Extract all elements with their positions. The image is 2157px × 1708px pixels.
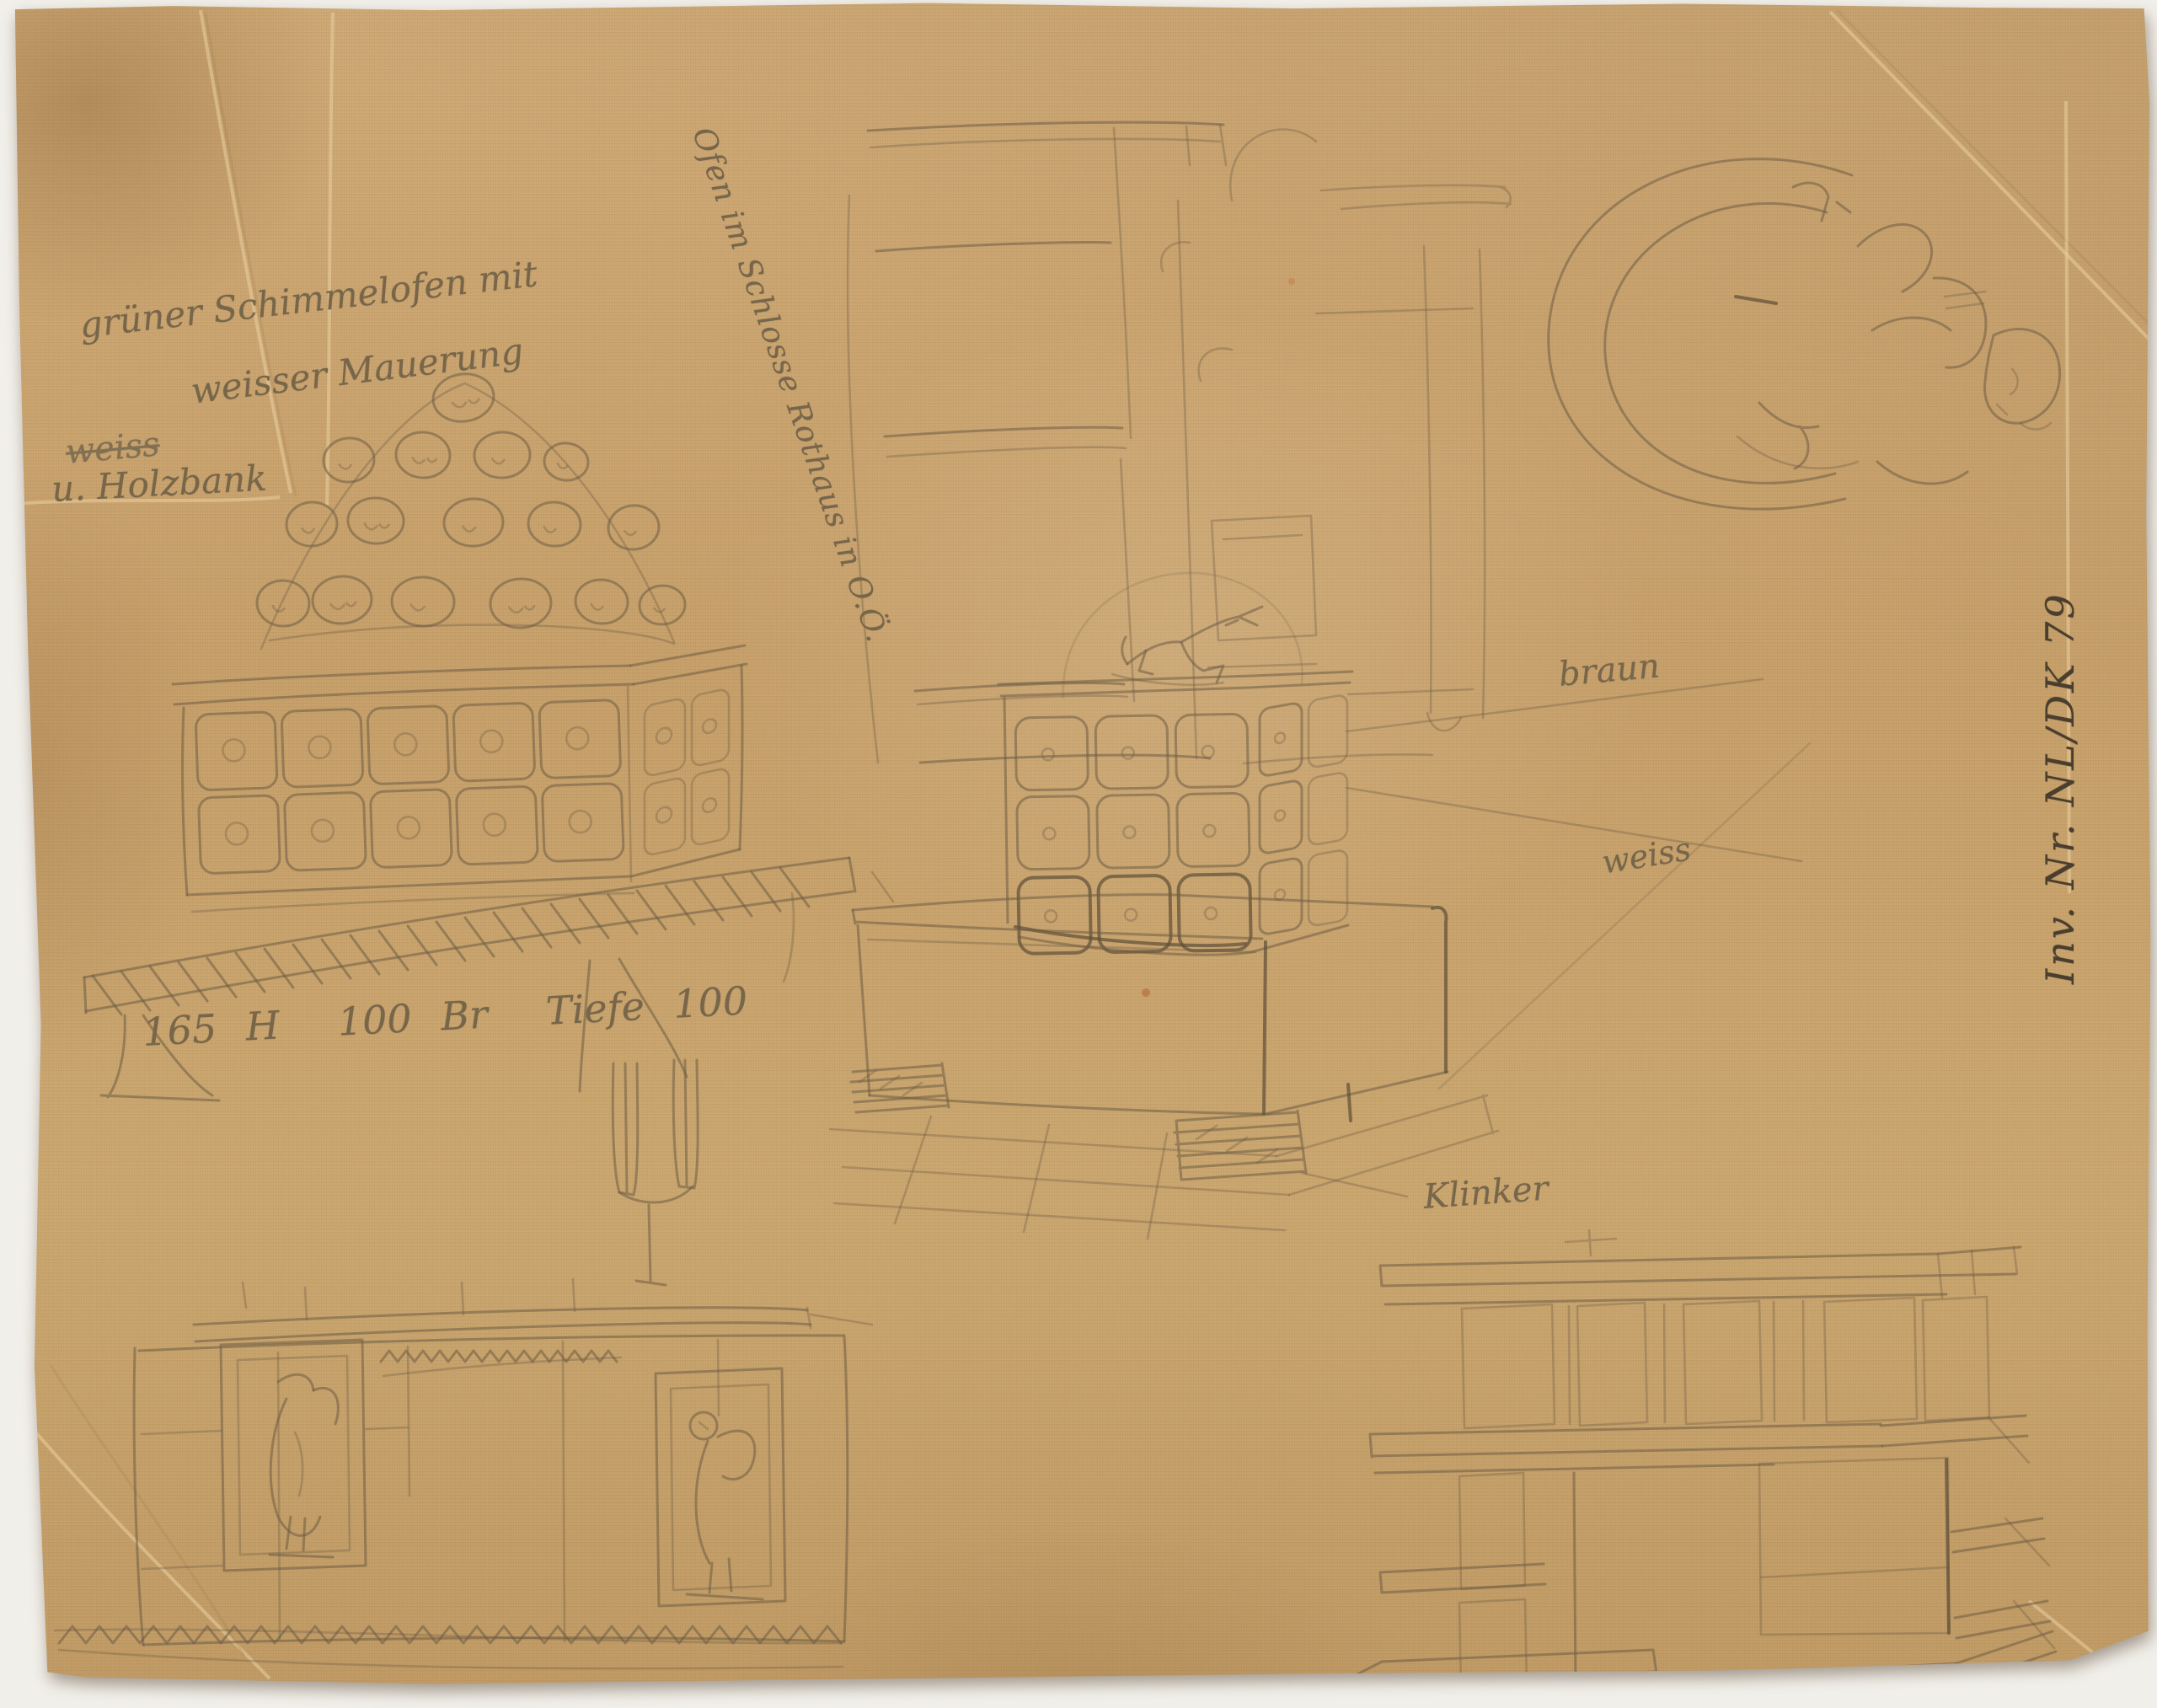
pencil-sketch-layer	[0, 0, 2157, 1708]
stain-dot-small	[1288, 278, 1295, 285]
sketch-seated-figure	[1549, 159, 2060, 510]
sketch-shelf-unit	[1352, 1230, 2056, 1698]
klinker-stack-left	[851, 1063, 949, 1112]
scan-background: grüner Schimmelofen mit weisser Mauerung…	[0, 0, 2157, 1708]
sketch-leader-lines	[1302, 679, 1810, 1197]
stain-dot	[1142, 988, 1150, 997]
sketch-center-stove	[830, 573, 1498, 1239]
sketch-flat-stove	[55, 1060, 872, 1668]
sketch-dome-stove	[173, 370, 747, 912]
klinker-stack-right	[1175, 1111, 1306, 1180]
figure-panel-left	[221, 1340, 366, 1571]
sketch-cabinet-elevation	[848, 122, 1511, 763]
stove-front-tiles	[195, 699, 624, 873]
sketch-candelabra	[613, 1060, 698, 1285]
paper-creases	[15, 10, 2155, 1679]
dome-round-tiles	[255, 370, 687, 629]
stove-top-figurine	[1112, 607, 1262, 685]
paper-sheet: grüner Schimmelofen mit weisser Mauerung…	[0, 0, 2157, 1708]
inventory-number-label: Inv. Nr. NL/DK 79	[2037, 592, 2083, 984]
figure-panel-right	[656, 1368, 785, 1606]
stove-side-tiles	[645, 688, 729, 856]
center-stove-front-tiles	[1015, 714, 1251, 954]
